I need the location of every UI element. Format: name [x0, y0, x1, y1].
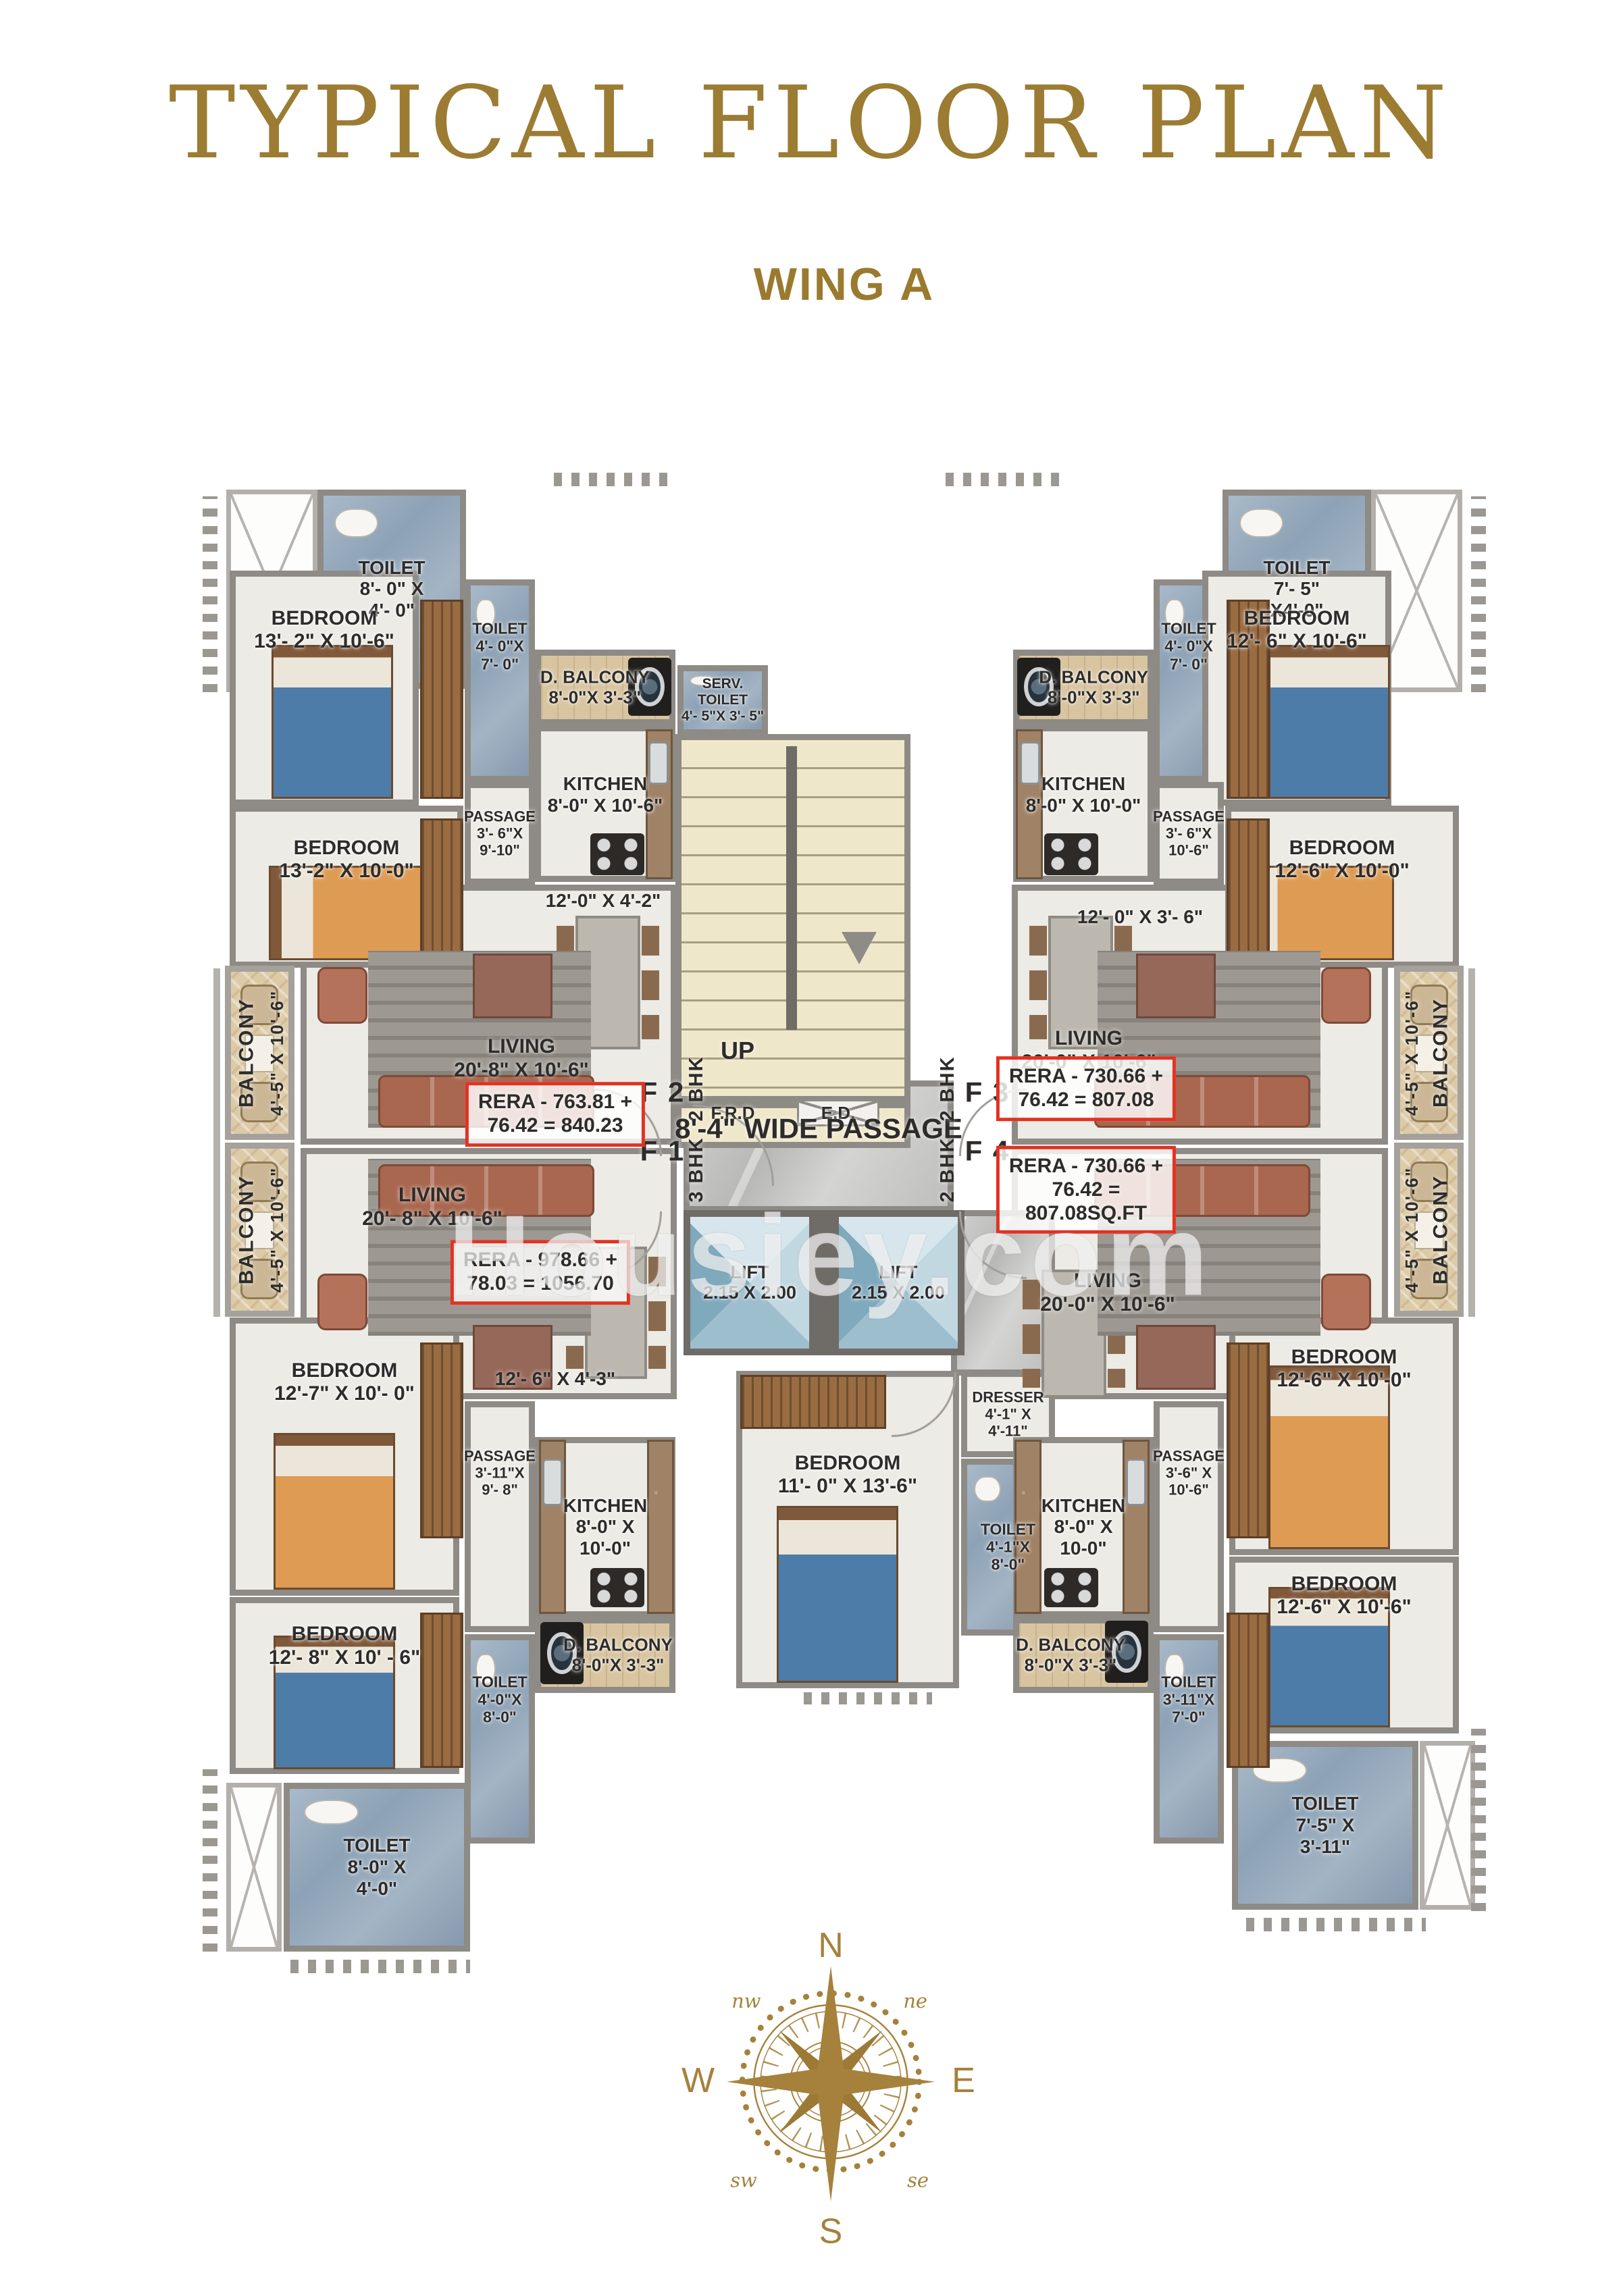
dining-dim-f2: 12'-0" X 4'-2": [546, 890, 661, 912]
stair-divider: [786, 746, 797, 1030]
center-bedroom-label: BEDROOM11'- 0" X 13'-6": [778, 1451, 917, 1497]
ledge: [804, 1692, 932, 1704]
wardrobe-center: [740, 1375, 886, 1429]
kitchen-f3-label: KITCHEN8'-0" X 10'-0": [1026, 773, 1141, 816]
wardrobe-f1-b: [420, 1613, 463, 1768]
compass-s: S: [819, 2212, 843, 2251]
toilet-f1-a: TOILET4'-0"X8'-0": [465, 1634, 535, 1844]
stove-f2: [590, 833, 644, 875]
counter-f1-b: [647, 1440, 674, 1614]
dining-dim-f1: 12'- 6" X 4'-3": [495, 1368, 615, 1390]
ledge: [203, 1769, 217, 1952]
passage-f1: PASSAGE3'-11"X9'- 8": [465, 1401, 535, 1632]
flat-f2: F 2: [640, 1076, 686, 1110]
balcony-l1-dim: 4'-5" X 10'-6": [267, 990, 287, 1116]
wardrobe-f3-b: [1227, 818, 1270, 960]
watermark: Housiey.com: [448, 1189, 1213, 1322]
armchair-f2: [317, 967, 367, 1024]
balcony-rail: [213, 968, 220, 1317]
dining-dim-f3: 12'- 0" X 3'- 6": [1077, 906, 1203, 928]
rera-f3: RERA - 730.66 +76.42 = 807.08: [996, 1056, 1176, 1121]
balcony-r2-label: BALCONY: [1430, 1175, 1453, 1284]
armchair-f1: [317, 1274, 367, 1330]
compass-sw: sw: [730, 2169, 757, 2192]
wardrobe-f4-a: [1227, 1342, 1270, 1538]
bedroom-f4-b-label: BEDROOM12'-6" X 10'-6": [1277, 1573, 1411, 1619]
stair-down-arrow: [842, 932, 877, 964]
hatch-f4: [1420, 1741, 1475, 1910]
bed-f4-a: [1268, 1365, 1390, 1549]
toilet-f4-a-label: TOILET3'-11"X7'-0": [1161, 1673, 1216, 1726]
hatch-f1: [226, 1783, 282, 1952]
balcony-l2-dim: 4'-5" X 10'-6": [267, 1167, 287, 1293]
passage-f3-label: PASSAGE3'- 6"X10'-6": [1153, 808, 1225, 858]
toilet-f4-b-label: TOILET7'-5" X3'-11": [1291, 1793, 1358, 1858]
balcony-r1-label: BALCONY: [1430, 998, 1453, 1107]
up-label: UP: [721, 1037, 754, 1065]
bed-f2-a: [272, 645, 393, 799]
bed-center: [777, 1506, 898, 1683]
passage-f2-label: PASSAGE3'- 6"X9'-10": [464, 808, 536, 858]
toilet-center-label: TOILET4'-1"X8'-0": [981, 1521, 1035, 1574]
serv-toilet: SERV.TOILET4'- 5"X 3'- 5": [677, 665, 768, 735]
bedroom-f3-b-label: BEDROOM12'-6" X 10'-0": [1275, 837, 1409, 883]
ottoman-f4: [1136, 1325, 1216, 1390]
ledge: [946, 473, 1067, 486]
ottoman-f2: [473, 954, 552, 1018]
kitchen-f4-label: KITCHEN8'-0" X10-0": [1041, 1495, 1125, 1560]
wardrobe-f2-b: [420, 818, 463, 960]
ledge: [203, 496, 217, 692]
balcony-r1-dim: 4'-5" X 10'-6": [1401, 990, 1422, 1116]
toilet-f1-b: TOILET8'-0" X4'-0": [284, 1783, 470, 1952]
sink-f4: [1126, 1459, 1146, 1506]
ledge: [1246, 1918, 1426, 1931]
dresser-niche-label: DRESSER4'-1" X4'-11": [972, 1388, 1044, 1439]
compass-ne: ne: [903, 1989, 927, 2012]
compass-nw: nw: [731, 1989, 761, 2012]
living-f2-label: LIVING20'-8" X 10'-6": [454, 1035, 588, 1082]
stove-f1: [590, 1568, 644, 1607]
bedroom-f2-a-label: BEDROOM13'- 2" X 10'-6": [254, 607, 394, 653]
compass-se: se: [907, 2169, 929, 2192]
wardrobe-f2-a: [420, 600, 463, 799]
bed-f1-a: [274, 1433, 395, 1590]
dbalcony-f1-label: D. BALCONY8'-0"X 3'-3": [563, 1635, 673, 1675]
balcony-r2-dim: 4'-5" X 10'-6": [1401, 1167, 1422, 1293]
balcony-l2-label: BALCONY: [236, 1175, 259, 1284]
armchair-f3: [1321, 967, 1371, 1024]
ledge: [1471, 1729, 1486, 1911]
compass-e: E: [952, 2061, 975, 2100]
passage-f3: PASSAGE3'- 6"X10'-6": [1154, 782, 1224, 885]
ledge: [1471, 496, 1486, 692]
passage-f2: PASSAGE3'- 6"X9'-10": [465, 782, 535, 885]
ottoman-f3: [1136, 954, 1216, 1018]
toilet-f1-b-label: TOILET8'-0" X4'-0": [343, 1835, 410, 1900]
bhk-f3: 2 BHK: [937, 1055, 960, 1121]
wardrobe-f4-b: [1227, 1613, 1270, 1768]
wide-passage-label: 8'-4" WIDE PASSAGE: [675, 1113, 962, 1146]
ledge: [290, 1960, 470, 1973]
passage-f4: PASSAGE3'-6" X10'-6": [1154, 1401, 1224, 1632]
bedroom-f3-a-label: BEDROOM12'- 6" X 10'-6": [1227, 607, 1367, 653]
balcony-l1-label: BALCONY: [236, 998, 259, 1107]
stove-f3: [1044, 833, 1098, 875]
toilet-f2-b: TOILET4'- 0"X7'- 0": [465, 579, 535, 782]
armchair-f4: [1321, 1274, 1371, 1330]
bedroom-f4-a-label: BEDROOM12'-6" X 10'-0": [1277, 1346, 1411, 1392]
bedroom-f1-a-label: BEDROOM12'-7" X 10'- 0": [274, 1359, 415, 1405]
bedroom-f1-b-label: BEDROOM12'- 8" X 10' - 6": [269, 1623, 421, 1669]
sink-f1: [542, 1459, 563, 1506]
serv-toilet-label: SERV.TOILET4'- 5"X 3'- 5": [681, 676, 764, 725]
ledge: [554, 473, 675, 486]
compass-n: N: [818, 1926, 844, 1965]
passage-f4-label: PASSAGE3'-6" X10'-6": [1153, 1448, 1225, 1498]
dbalcony-f4-label: D. BALCONY8'-0"X 3'-3": [1016, 1635, 1125, 1675]
bedroom-f2-b-label: BEDROOM13'-2" X 10'-0": [279, 837, 413, 883]
toilet-f1-a-label: TOILET4'-0"X8'-0": [472, 1673, 527, 1726]
stove-f4: [1044, 1568, 1098, 1607]
toilet-f3-b-label: TOILET4'- 0"X7'- 0": [1161, 620, 1216, 673]
compass-w: W: [681, 2061, 715, 2100]
floor-plan-page: { "page": { "title": "TYPICAL FLOOR PLAN…: [0, 0, 1621, 2296]
dbalcony-f2-label: D. BALCONY8'-0"X 3'-3": [540, 667, 650, 707]
kitchen-f1-label: KITCHEN8'-0" X10'-0": [563, 1495, 647, 1560]
toilet-f2-b-label: TOILET4'- 0"X7'- 0": [472, 620, 527, 673]
bhk-f2: 2 BHK: [686, 1055, 709, 1121]
kitchen-f2-label: KITCHEN8'-0" X 10'-6": [548, 773, 663, 816]
rera-f2: RERA - 763.81 +76.42 = 840.23: [465, 1082, 645, 1147]
wardrobe-f1-a: [420, 1342, 463, 1538]
balcony-rail: [1468, 968, 1475, 1317]
toilet-f4-a: TOILET3'-11"X7'-0": [1154, 1634, 1224, 1844]
dbalcony-f3-label: D. BALCONY8'-0"X 3'-3": [1039, 667, 1148, 707]
passage-f1-label: PASSAGE3'-11"X9'- 8": [464, 1448, 536, 1498]
compass-icon: N E S W nw ne sw se: [674, 1919, 987, 2270]
bed-f3-a: [1268, 645, 1390, 799]
